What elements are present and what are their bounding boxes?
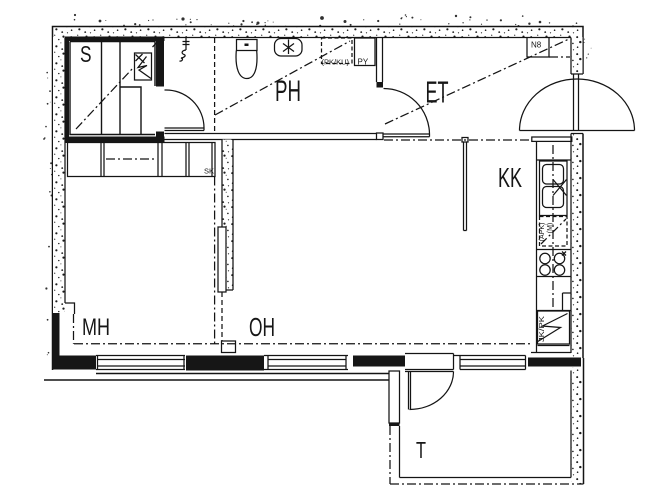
- svg-text:ET: ET: [426, 75, 449, 110]
- svg-text:PH: PH: [275, 75, 301, 108]
- svg-text:PY: PY: [358, 58, 369, 67]
- svg-text:JK/PK: JK/PK: [539, 316, 546, 342]
- svg-text:N8: N8: [531, 41, 542, 50]
- svg-text:SK: SK: [204, 167, 214, 176]
- svg-text:T: T: [416, 437, 426, 463]
- svg-text:(PK/KU): (PK/KU): [322, 58, 350, 67]
- svg-text:(APK): (APK): [539, 223, 546, 242]
- svg-text:OH: OH: [249, 312, 275, 342]
- svg-text:KK: KK: [498, 162, 522, 193]
- svg-text:S: S: [80, 41, 92, 67]
- svg-text:MH: MH: [82, 314, 110, 341]
